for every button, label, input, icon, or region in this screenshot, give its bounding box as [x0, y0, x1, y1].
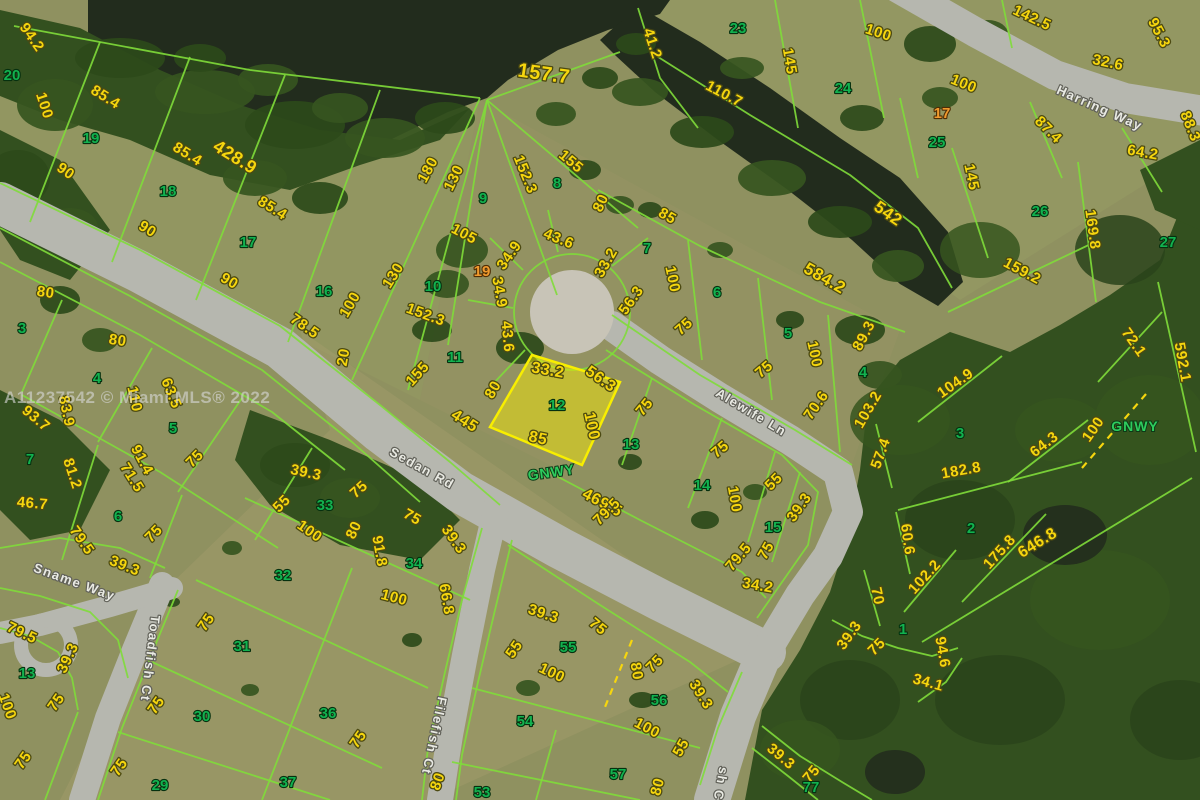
- lot-number-label: 18: [160, 183, 177, 200]
- lot-number-label: 20: [4, 67, 21, 84]
- dimension-label: 43.6: [498, 320, 518, 353]
- dimension-label: 20: [334, 347, 354, 367]
- lot-number-label: 3: [956, 425, 964, 442]
- lot-number-label: 37: [280, 774, 297, 791]
- lot-number-label: 4: [859, 364, 868, 381]
- lot-number-label: 36: [320, 705, 337, 722]
- tree-clump: [292, 182, 348, 214]
- tree-clump: [808, 206, 872, 238]
- tree-clump: [691, 511, 719, 529]
- tree-clump: [312, 93, 368, 123]
- lot-number-label: 3: [18, 320, 26, 337]
- greenway-label: GNWY: [1111, 418, 1159, 434]
- lot-number-label: 32: [275, 567, 292, 584]
- dimension-label: 80: [108, 331, 128, 350]
- lot-number-label: 55: [560, 639, 577, 656]
- lot-number-label: 7: [26, 451, 34, 468]
- lot-number-label: 14: [694, 477, 711, 494]
- tree-clump: [840, 105, 884, 131]
- lot-number-label: 6: [713, 284, 721, 301]
- lot-number-label: 53: [474, 784, 491, 800]
- lot-number-label: 13: [623, 436, 640, 453]
- lot-number-label: 19: [474, 263, 491, 280]
- tree-clump: [872, 250, 924, 282]
- lot-number-label: 23: [730, 20, 747, 37]
- tree-clump: [17, 79, 93, 131]
- lot-number-label: 29: [152, 777, 169, 794]
- lot-number-label: 4: [93, 370, 102, 387]
- lot-number-label: 9: [479, 190, 487, 207]
- lot-number-label: 57: [610, 766, 627, 783]
- lot-number-label: 5: [784, 325, 792, 342]
- lot-number-label: 31: [234, 638, 251, 655]
- tree-clump: [582, 67, 618, 89]
- dimension-label: 46.7: [16, 494, 49, 514]
- tree-clump: [618, 454, 642, 470]
- lot-number-label: 54: [517, 713, 534, 730]
- tree-clump: [720, 57, 764, 79]
- tree-clump: [402, 633, 422, 647]
- forest-texture: [1030, 550, 1170, 650]
- tree-clump: [536, 102, 576, 126]
- dimension-label: 70: [867, 586, 887, 607]
- lot-number-label: 25: [929, 134, 946, 151]
- lot-number-label: 19: [83, 130, 100, 147]
- lot-number-label: 24: [835, 80, 852, 97]
- lot-number-label: 30: [194, 708, 211, 725]
- lot-number-label: 16: [316, 283, 333, 300]
- plat-map-svg: 94.210085.49085.4428.99085.490808078.510…: [0, 0, 1200, 800]
- cul-de-sac: [530, 270, 614, 354]
- lot-number-label: 8: [553, 175, 561, 192]
- lot-number-label: 17: [240, 234, 257, 251]
- tree-clump: [738, 160, 806, 196]
- tree-clump: [670, 116, 734, 148]
- tree-clump: [516, 680, 540, 696]
- pond: [865, 750, 925, 794]
- dimension-label: 80: [36, 283, 56, 302]
- lot-number-label: 2: [967, 520, 975, 537]
- lot-number-label: 5: [169, 420, 177, 437]
- lot-number-label: 1: [899, 621, 907, 638]
- lot-number-label: 6: [114, 508, 122, 525]
- lot-number-label: 10: [425, 278, 442, 295]
- lot-number-label: 56: [651, 692, 668, 709]
- tree-clump: [222, 541, 242, 555]
- map-root: 94.210085.49085.4428.99085.490808078.510…: [0, 0, 1200, 800]
- lot-number-label: 15: [765, 519, 782, 536]
- lot-number-label: 12: [549, 397, 566, 414]
- tree-clump: [612, 78, 668, 106]
- lot-number-label: 34: [406, 555, 423, 572]
- lot-number-label: 7: [643, 240, 651, 257]
- lot-number-label: 77: [803, 779, 820, 796]
- lot-number-label: 17: [934, 105, 951, 122]
- lot-number-label: 11: [447, 349, 463, 366]
- lot-number-label: 26: [1032, 203, 1049, 220]
- lot-number-label: 33: [317, 497, 334, 514]
- lot-number-label: 13: [19, 665, 36, 682]
- tree-clump: [241, 684, 259, 696]
- lot-number-label: 27: [1160, 234, 1177, 251]
